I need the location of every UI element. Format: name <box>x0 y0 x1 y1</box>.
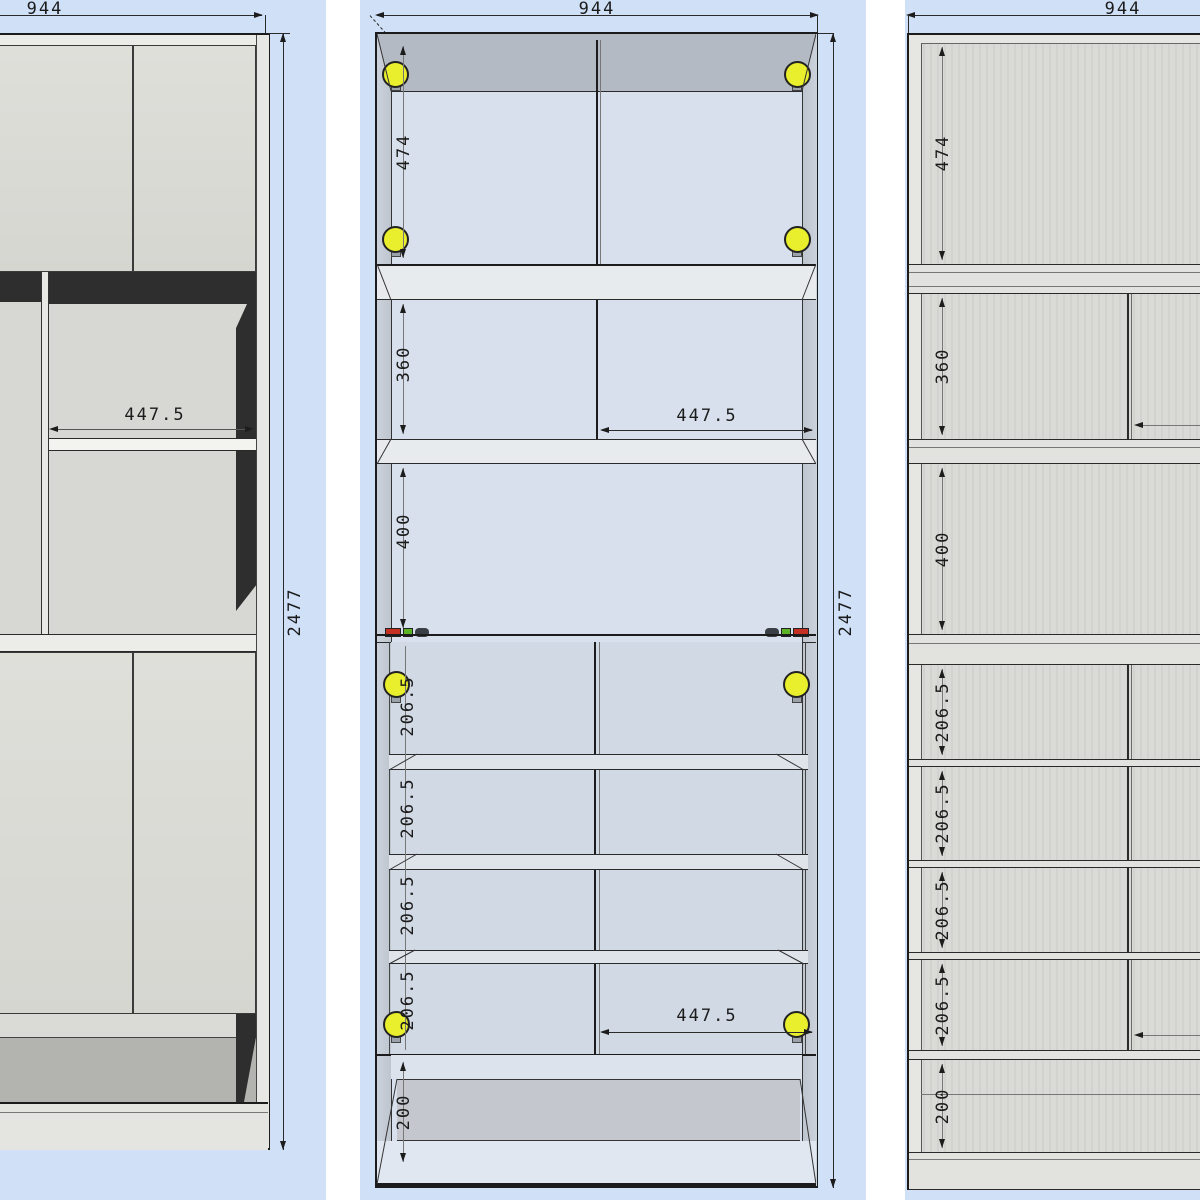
base-rail <box>0 1102 268 1150</box>
open-compartment <box>49 451 256 634</box>
section-dim-label: 474 <box>394 134 414 171</box>
band-line <box>909 1159 1200 1160</box>
dim-arrow <box>939 426 945 435</box>
inner-wall-line <box>805 642 806 1054</box>
extension-line <box>265 15 266 33</box>
band-line <box>909 447 1200 448</box>
section-dim-label: 206.5 <box>933 681 953 742</box>
dim-line <box>52 429 253 430</box>
dim-arrow <box>254 12 263 18</box>
door-gap-divider <box>600 40 601 264</box>
section-dim-label: 206.5 <box>933 974 953 1035</box>
interior-side-shadow <box>236 1014 256 1037</box>
dim-line <box>833 33 834 1188</box>
dim-arrow <box>804 427 813 433</box>
door-panel <box>133 652 256 1014</box>
floor-panel <box>377 1141 816 1186</box>
shelf <box>389 754 808 770</box>
height-dim-label: 2477 <box>285 588 305 637</box>
shelf-width-dim-label: 447.5 <box>647 406 767 426</box>
cabinet-open-view: 474 360 447.5 400 <box>375 32 818 1188</box>
shelf-width-dim-label: 447.5 <box>647 1006 767 1026</box>
dim-arrow <box>939 47 945 56</box>
dim-arrow <box>939 771 945 780</box>
dim-arrow <box>830 1179 836 1188</box>
extension-line <box>817 15 818 33</box>
dim-arrow <box>939 964 945 973</box>
dim-arrow <box>939 1139 945 1148</box>
side-panel <box>256 35 269 1148</box>
dim-arrow <box>939 298 945 307</box>
section-dim-label: 206.5 <box>398 777 418 838</box>
plinth-floor <box>0 1037 256 1103</box>
dim-arrow <box>600 1029 609 1035</box>
section-dim-label: 206.5 <box>398 874 418 935</box>
door-panel <box>133 45 256 272</box>
base-rail-line <box>0 1112 268 1113</box>
dim-line <box>283 33 284 1150</box>
section-dim-label: 474 <box>933 135 953 172</box>
section-dim-label: 206.5 <box>398 969 418 1030</box>
band-line <box>909 272 1200 273</box>
base-mid-line <box>921 1094 1200 1095</box>
width-dim-label: 944 <box>557 0 637 19</box>
door-gap-divider <box>596 40 598 264</box>
dim-arrow <box>400 1153 406 1162</box>
dim-arrow <box>400 249 406 258</box>
extension-line <box>908 15 909 33</box>
base-opening <box>0 1014 256 1037</box>
fixed-shelf-band <box>377 439 816 464</box>
dim-line <box>1137 425 1200 426</box>
dim-arrow <box>804 1029 813 1035</box>
fixed-shelf-band <box>909 1050 1200 1060</box>
dim-arrow <box>280 33 286 42</box>
fixed-shelf-band <box>909 264 1200 294</box>
compartment-divider <box>596 300 598 439</box>
section-dim-label: 200 <box>394 1094 414 1131</box>
dim-arrow <box>939 1064 945 1073</box>
open-compartment-shadow <box>0 272 41 302</box>
vertical-divider <box>41 272 49 634</box>
dim-arrow <box>939 468 945 477</box>
dim-arrow <box>939 1037 945 1046</box>
height-dim-label: 2477 <box>836 588 856 637</box>
dim-arrow <box>49 426 58 432</box>
dim-arrow <box>1134 422 1143 428</box>
fixed-shelf-band <box>909 439 1200 464</box>
dim-arrow <box>400 1062 406 1071</box>
view-panel-middle: 944 474 <box>360 0 866 1200</box>
base-opening <box>391 1055 802 1079</box>
compartment-divider <box>1127 294 1132 439</box>
hinge-marker <box>382 61 409 88</box>
dim-arrow <box>939 251 945 260</box>
shelf <box>389 854 808 870</box>
compartment-divider <box>1127 960 1132 1050</box>
section-dim-label: 206.5 <box>933 782 953 843</box>
shelf-band <box>909 759 1200 767</box>
section-dim-label: 360 <box>394 346 414 383</box>
hinge-marker <box>784 61 811 88</box>
interior-side-shadow <box>236 304 256 438</box>
dim-arrow <box>375 12 384 18</box>
open-compartment-shadow <box>49 272 256 304</box>
dim-line <box>602 430 812 431</box>
dim-arrow <box>400 468 406 477</box>
section-dim-label: 206.5 <box>398 675 418 736</box>
view-panel-left: 944 447.5 <box>0 0 326 1200</box>
compartment-divider <box>1127 665 1132 759</box>
dim-arrow <box>600 427 609 433</box>
fixed-shelf-band <box>0 634 256 652</box>
view-panel-right: 944 <box>905 0 1200 1200</box>
band-line <box>909 643 1200 644</box>
shelf <box>389 950 808 964</box>
side-panel <box>909 35 922 1188</box>
cabinet-closed-view: 447.5 <box>0 33 270 1150</box>
dim-arrow <box>830 33 836 42</box>
cabinet-rear-view: 474 360 400 206.5 206.5 206.5 20 <box>907 33 1200 1190</box>
shelf <box>49 438 256 451</box>
hinge-marker <box>783 671 810 698</box>
dim-arrow <box>400 619 406 628</box>
width-dim-label: 944 <box>15 0 75 19</box>
dim-arrow <box>400 425 406 434</box>
shelf-band <box>909 952 1200 960</box>
compartment-divider <box>1127 767 1132 860</box>
dim-line <box>602 1032 812 1033</box>
dim-arrow <box>939 746 945 755</box>
interior-side-shadow <box>236 451 256 611</box>
dim-arrow <box>1134 1032 1143 1038</box>
width-dim-label: 944 <box>1083 0 1163 19</box>
section-dim-label: 360 <box>933 348 953 385</box>
lower-cabinet-interior <box>391 642 802 1054</box>
base-rail <box>909 1152 1200 1190</box>
fixed-shelf-band <box>909 634 1200 665</box>
door-gap-divider <box>599 642 600 1054</box>
plinth <box>397 1079 800 1141</box>
compartment-divider <box>1127 868 1132 952</box>
fixed-shelf-band <box>377 264 816 300</box>
dim-arrow <box>939 847 945 856</box>
section-dim-label: 400 <box>933 531 953 568</box>
dim-arrow <box>939 669 945 678</box>
band-line <box>909 286 1200 287</box>
top-panel-edge <box>921 35 1200 44</box>
shelf-width-dim-label: 447.5 <box>95 405 215 425</box>
dim-arrow <box>400 304 406 313</box>
hinge-marker <box>784 226 811 253</box>
door-gap-divider <box>594 642 596 1054</box>
extension-line <box>370 15 387 34</box>
dim-line <box>1137 1035 1200 1036</box>
section-dim-label: 206.5 <box>933 879 953 940</box>
shelf-band <box>909 860 1200 868</box>
dim-arrow <box>280 1141 286 1150</box>
door-panel <box>0 652 133 1014</box>
section-dim-label: 400 <box>394 513 414 550</box>
door-panel <box>0 45 133 272</box>
inner-wall-line <box>389 642 390 1054</box>
section-dim-label: 200 <box>933 1088 953 1125</box>
dim-arrow <box>400 46 406 55</box>
cad-drawing-canvas: 944 447.5 <box>0 0 1200 1200</box>
carcass-split-line <box>377 634 816 636</box>
dim-arrow <box>939 621 945 630</box>
open-compartment <box>0 302 41 634</box>
extension-line <box>268 33 290 34</box>
dim-arrow <box>245 426 254 432</box>
